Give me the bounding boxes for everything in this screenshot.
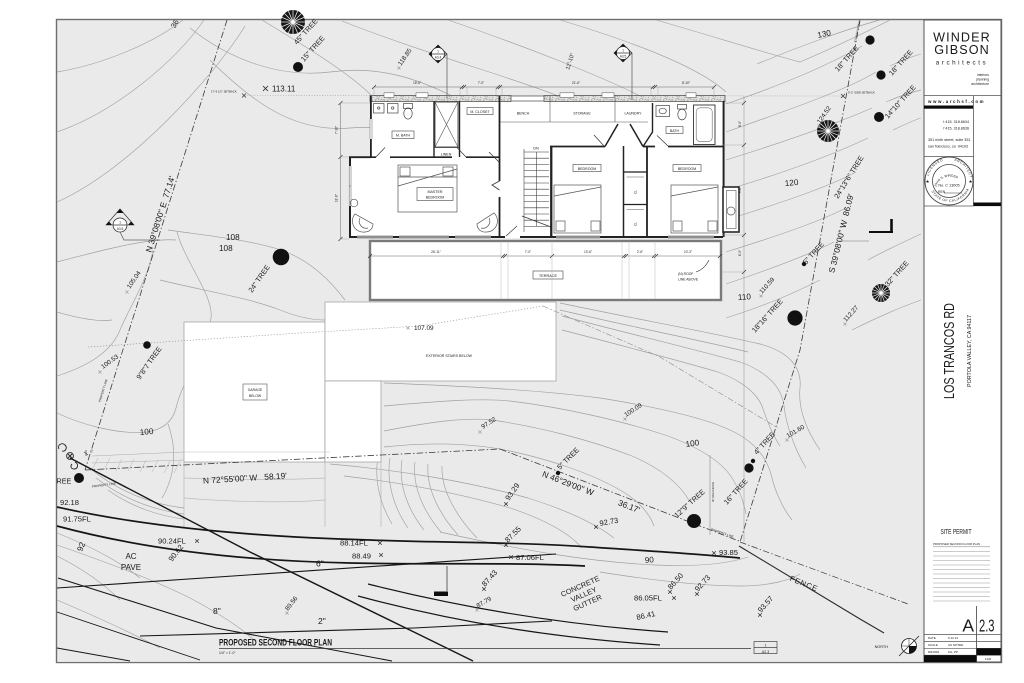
svg-text:17'-9 1/2" SETBACK: 17'-9 1/2" SETBACK — [211, 90, 237, 94]
svg-text:PROPOSED SECOND FLOOR PLAN: PROPOSED SECOND FLOOR PLAN — [219, 638, 332, 648]
svg-text:26'-11": 26'-11" — [431, 250, 441, 254]
svg-text:LOS TRANCOS RD: LOS TRANCOS RD — [942, 303, 958, 399]
svg-text:AS NOTED: AS NOTED — [948, 643, 964, 647]
svg-text:1: 1 — [119, 221, 121, 225]
svg-text:2.3: 2.3 — [979, 616, 995, 636]
svg-text:SCALE: SCALE — [928, 643, 938, 647]
svg-text:KG, PP: KG, PP — [948, 650, 958, 654]
svg-text:BELOW: BELOW — [249, 394, 262, 398]
svg-text:LINE ABOVE: LINE ABOVE — [678, 278, 699, 282]
svg-text:1420: 1420 — [985, 657, 992, 661]
svg-text:REN: REN — [938, 190, 946, 194]
svg-text:9'-2" SIDE SETBACK: 9'-2" SIDE SETBACK — [848, 91, 875, 95]
svg-text:1: 1 — [622, 49, 624, 53]
svg-text:7'-10": 7'-10" — [335, 126, 339, 134]
svg-text:13'-6": 13'-6" — [584, 250, 592, 254]
svg-text:planning: planning — [976, 78, 989, 82]
svg-text:A3.4: A3.4 — [435, 56, 442, 60]
svg-text:6.12.13: 6.12.13 — [948, 636, 958, 640]
svg-text:92.18: 92.18 — [60, 498, 79, 507]
svg-text:93.85: 93.85 — [719, 548, 738, 557]
svg-text:architects: architects — [936, 60, 988, 67]
svg-text:91.75FL: 91.75FL — [63, 515, 91, 524]
svg-text:t 415. 318.8634: t 415. 318.8634 — [943, 120, 969, 124]
svg-text:DATE: DATE — [928, 636, 936, 640]
svg-text:6": 6" — [316, 559, 324, 569]
svg-text:A2.3: A2.3 — [762, 650, 769, 654]
svg-text:30' HIGH FENCE: 30' HIGH FENCE — [711, 482, 715, 502]
svg-text:architecture: architecture — [971, 82, 989, 86]
svg-text:86.05FL: 86.05FL — [634, 594, 662, 603]
svg-text:BEDROOM: BEDROOM — [426, 196, 445, 200]
svg-text:9'-0": 9'-0" — [738, 187, 742, 193]
svg-text:BEDROOM: BEDROOM — [678, 167, 697, 171]
svg-text:90: 90 — [644, 555, 654, 565]
svg-text:M. CLOSET: M. CLOSET — [470, 110, 490, 114]
svg-text:M. BATH: M. BATH — [396, 134, 411, 138]
svg-text:LINEN: LINEN — [441, 153, 452, 157]
svg-text:90.24FL: 90.24FL — [158, 537, 186, 546]
svg-text:120: 120 — [784, 178, 799, 188]
svg-text:EXTERIOR STAIRS BELOW: EXTERIOR STAIRS BELOW — [426, 354, 473, 358]
svg-text:www.archsf.com: www.archsf.com — [927, 99, 985, 104]
svg-text:100: 100 — [139, 427, 154, 437]
svg-text:15'-6": 15'-6" — [413, 81, 421, 85]
svg-text:88.14FL: 88.14FL — [340, 539, 368, 548]
svg-text:8": 8" — [213, 606, 221, 616]
svg-text:2": 2" — [318, 616, 326, 626]
svg-text:MASTER: MASTER — [428, 190, 443, 194]
svg-text:NORTH: NORTH — [875, 645, 889, 649]
svg-text:DN: DN — [533, 147, 539, 151]
svg-text:1: 1 — [437, 50, 439, 54]
svg-text:88.49: 88.49 — [352, 552, 371, 561]
svg-text:PORTOLA VALLEY, CA 94117: PORTOLA VALLEY, CA 94117 — [967, 315, 973, 387]
svg-text:SITE PERMIT: SITE PERMIT — [941, 527, 972, 536]
svg-text:(N) ROOF: (N) ROOF — [678, 272, 693, 276]
svg-text:11'-6": 11'-6" — [335, 194, 339, 202]
svg-text:113.11: 113.11 — [272, 85, 296, 94]
svg-text:TERRACE: TERRACE — [539, 274, 558, 278]
svg-text:san francisco, ca 94103: san francisco, ca 94103 — [928, 145, 968, 149]
svg-text:BENCH: BENCH — [517, 112, 530, 116]
svg-text:110: 110 — [738, 292, 752, 302]
svg-text:1: 1 — [765, 644, 767, 648]
svg-text:PAVE: PAVE — [121, 563, 141, 572]
svg-text:108: 108 — [226, 233, 240, 242]
svg-text:BEDROOM: BEDROOM — [578, 167, 597, 171]
svg-text:107.09: 107.09 — [414, 325, 434, 332]
svg-text:2'-6": 2'-6" — [637, 250, 643, 254]
svg-text:A3.5: A3.5 — [117, 227, 124, 231]
svg-text:7'-0": 7'-0" — [525, 250, 531, 254]
svg-text:351 ninth street, suite 351: 351 ninth street, suite 351 — [928, 138, 970, 142]
svg-text:10'-3": 10'-3" — [684, 250, 692, 254]
svg-text:1/4" = 1'-0": 1/4" = 1'-0" — [219, 651, 236, 655]
svg-text:108: 108 — [219, 244, 233, 253]
svg-text:A: A — [962, 616, 974, 636]
svg-text:f 415. 318.8636: f 415. 318.8636 — [943, 127, 969, 131]
svg-text:GARAGE: GARAGE — [248, 388, 263, 392]
svg-text:LAUNDRY: LAUNDRY — [624, 112, 642, 116]
svg-text:8'-10": 8'-10" — [682, 81, 690, 85]
svg-text:8'-9": 8'-9" — [738, 121, 742, 127]
svg-text:interiors: interiors — [977, 73, 989, 77]
svg-text:REE: REE — [57, 477, 72, 486]
svg-text:7'-0": 7'-0" — [478, 81, 484, 85]
svg-text:PROPOSED SECOND FLOOR PLAN: PROPOSED SECOND FLOOR PLAN — [933, 542, 980, 546]
svg-text:BATH: BATH — [670, 129, 680, 133]
svg-text:CL: CL — [634, 222, 638, 226]
svg-text:GIBSON: GIBSON — [934, 43, 990, 57]
svg-text:No. C 13005: No. C 13005 — [938, 184, 959, 188]
svg-text:6'-9": 6'-9" — [738, 250, 742, 256]
svg-text:CL: CL — [634, 190, 638, 194]
svg-text:87.06FL: 87.06FL — [516, 553, 544, 562]
svg-text:STORAGE: STORAGE — [573, 112, 591, 116]
svg-text:DRAWN: DRAWN — [928, 650, 939, 654]
svg-text:21'-6": 21'-6" — [572, 81, 580, 85]
svg-text:A3.5: A3.5 — [620, 55, 627, 59]
svg-text:AC: AC — [125, 552, 136, 561]
